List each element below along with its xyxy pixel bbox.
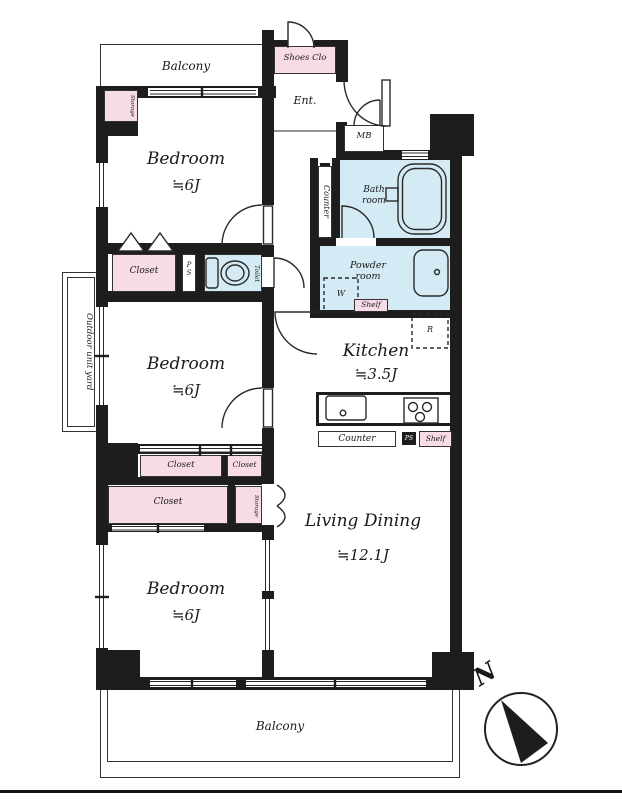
wall-powder-top bbox=[310, 238, 452, 246]
powder-room-label: Powder room bbox=[330, 260, 406, 282]
floor-plan: Balcony Shoes Clo Ent. MB Bath room Coun… bbox=[0, 0, 622, 800]
balcony-top-label: Balcony bbox=[110, 59, 262, 73]
kitchen-counter-unit bbox=[316, 392, 453, 426]
counter-wall-label: Counter bbox=[319, 170, 331, 234]
wall-counter-right bbox=[332, 158, 340, 246]
wall-block-bed2-corner bbox=[100, 443, 138, 482]
shelf-kitchen: Shelf bbox=[419, 431, 452, 447]
window-opening bbox=[402, 151, 428, 159]
counter-kitchen-label: Counter bbox=[338, 434, 375, 445]
pipe-shaft-upper-label: P S bbox=[185, 261, 193, 278]
bedroom-3-name: Bedroom bbox=[113, 579, 259, 599]
wall-block-topright bbox=[430, 114, 474, 156]
powder-room-label-line1: Powder bbox=[330, 260, 406, 271]
window-opening bbox=[96, 307, 108, 405]
shelf-kitchen-label: Shelf bbox=[426, 435, 446, 444]
bath-room-label-line2: room bbox=[346, 196, 402, 207]
closet-2b-label: Closet bbox=[227, 461, 262, 470]
meter-box-label: MB bbox=[344, 131, 384, 141]
bath-room-label: Bath room bbox=[346, 185, 402, 206]
door-opening bbox=[262, 484, 274, 525]
wall-toilet-left bbox=[196, 252, 204, 294]
pipe-shaft-kitchen: PS bbox=[402, 432, 416, 445]
window-opening bbox=[96, 163, 108, 207]
living-dining-size: ≒12.1J bbox=[277, 547, 449, 565]
window-opening bbox=[150, 680, 236, 687]
door-opening bbox=[262, 257, 274, 287]
washer-label: W bbox=[331, 289, 351, 298]
window-opening bbox=[246, 680, 426, 687]
wall-block-storage bbox=[104, 122, 138, 136]
wall-bed1-bottom bbox=[96, 243, 274, 254]
kitchen-name: Kitchen bbox=[312, 341, 440, 361]
toilet-label: Toilet bbox=[248, 257, 260, 289]
shoes-closet-label: Shoes Clo bbox=[274, 53, 336, 63]
wall-counter-left bbox=[310, 158, 318, 246]
window-opening bbox=[148, 88, 258, 96]
shelf-powder-label: Shelf bbox=[361, 301, 381, 310]
bedroom-1-size: ≒6J bbox=[113, 177, 259, 195]
wall-powder-left bbox=[310, 238, 320, 318]
closet-1-label: Closet bbox=[112, 266, 176, 277]
counter-kitchen: Counter bbox=[318, 431, 396, 447]
bath-room-label-line1: Bath bbox=[346, 185, 402, 196]
wall-ent-right-upper bbox=[336, 40, 348, 82]
outdoor-unit-yard-label: Outdoor unit yard bbox=[68, 280, 94, 424]
door-opening bbox=[262, 388, 274, 428]
balcony-bottom-label: Balcony bbox=[180, 719, 380, 733]
bedroom-2-name: Bedroom bbox=[113, 354, 259, 374]
compass bbox=[485, 693, 557, 765]
storage-mid-label: Storage bbox=[238, 489, 259, 522]
closet-3-label: Closet bbox=[108, 497, 228, 508]
window-opening bbox=[96, 545, 108, 648]
powder-room-label-line2: room bbox=[330, 271, 406, 282]
kitchen-size: ≒3.5J bbox=[312, 366, 440, 384]
storage-top-label: Storage bbox=[107, 91, 135, 121]
wall-row1-bottom bbox=[96, 291, 274, 302]
living-dining-name: Living Dining bbox=[277, 511, 449, 531]
fridge-label: R bbox=[418, 325, 442, 334]
bedroom-2-size: ≒6J bbox=[113, 382, 259, 400]
entrance-label: Ent. bbox=[274, 95, 336, 108]
bedroom-1-name: Bedroom bbox=[113, 149, 259, 169]
shelf-powder: Shelf bbox=[354, 299, 388, 312]
wall-block-bed3-corner bbox=[100, 650, 140, 678]
wall-rowB-divider bbox=[228, 485, 235, 525]
bedroom-3-size: ≒6J bbox=[113, 607, 259, 625]
sliding-door-opening bbox=[112, 525, 204, 531]
door-opening bbox=[262, 205, 274, 245]
window-opening bbox=[262, 540, 274, 650]
page-divider-line bbox=[0, 790, 622, 793]
wall-stub-powder bbox=[393, 309, 402, 317]
closet-2a-label: Closet bbox=[140, 460, 222, 470]
sliding-door-opening bbox=[140, 446, 262, 452]
pipe-shaft-kitchen-label: PS bbox=[405, 435, 413, 442]
door-opening bbox=[336, 238, 376, 246]
